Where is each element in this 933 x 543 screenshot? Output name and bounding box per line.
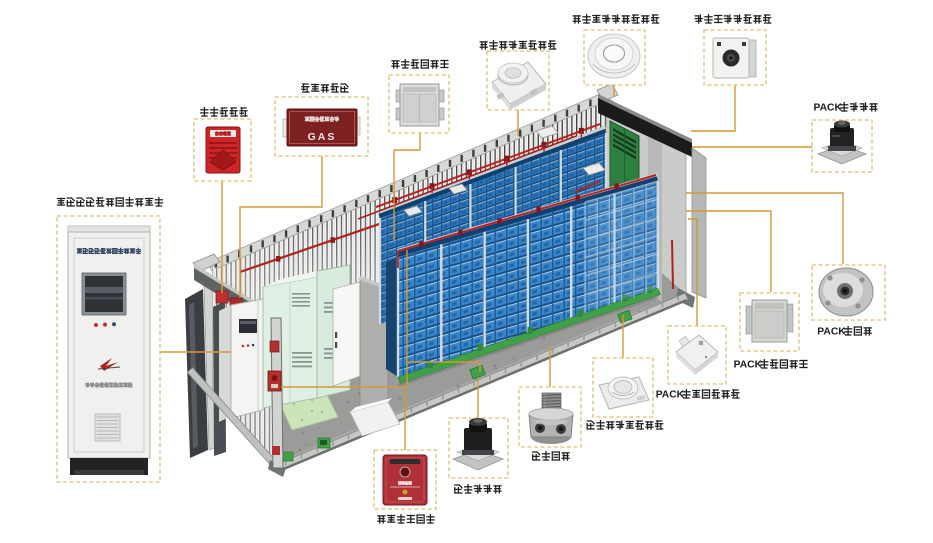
svg-text:GAS: GAS <box>308 131 337 143</box>
svg-text:PACK: PACK <box>814 103 843 114</box>
svg-text:PACK: PACK <box>656 390 685 401</box>
svg-text:PACK: PACK <box>734 360 763 371</box>
svg-text:PACK: PACK <box>817 327 846 338</box>
